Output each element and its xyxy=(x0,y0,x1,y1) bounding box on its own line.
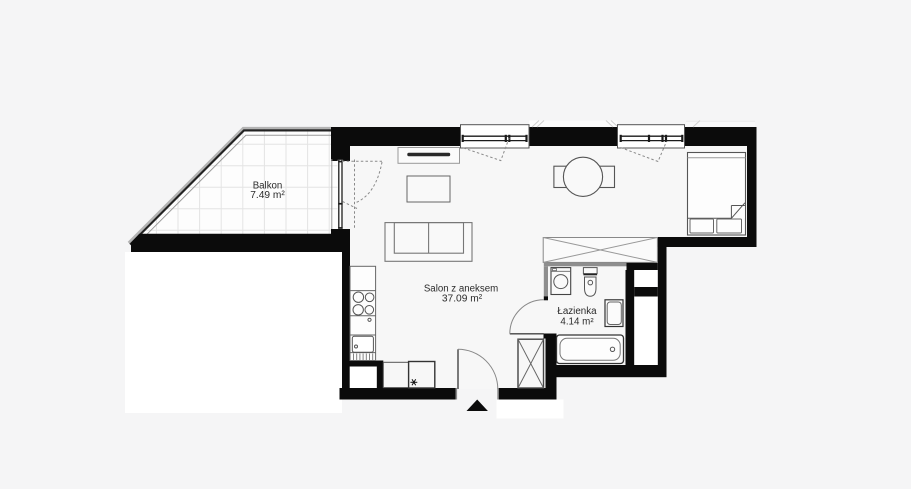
svg-text:Łazienka: Łazienka xyxy=(557,306,597,317)
svg-text:7.49 m²: 7.49 m² xyxy=(250,190,285,201)
svg-text:4.14 m²: 4.14 m² xyxy=(560,316,594,327)
svg-text:37.09 m²: 37.09 m² xyxy=(442,294,483,305)
